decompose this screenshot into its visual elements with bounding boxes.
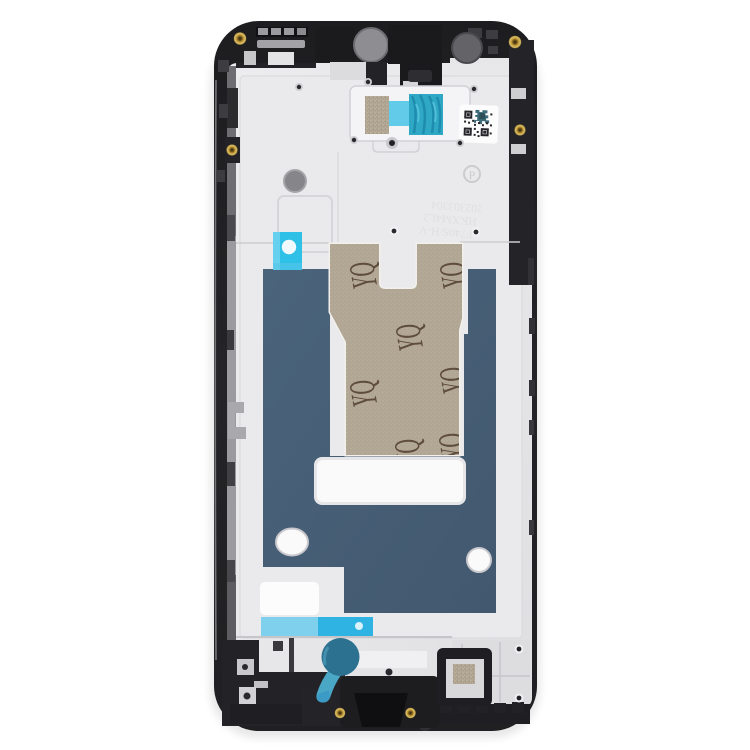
svg-text:P: P [469, 168, 476, 182]
